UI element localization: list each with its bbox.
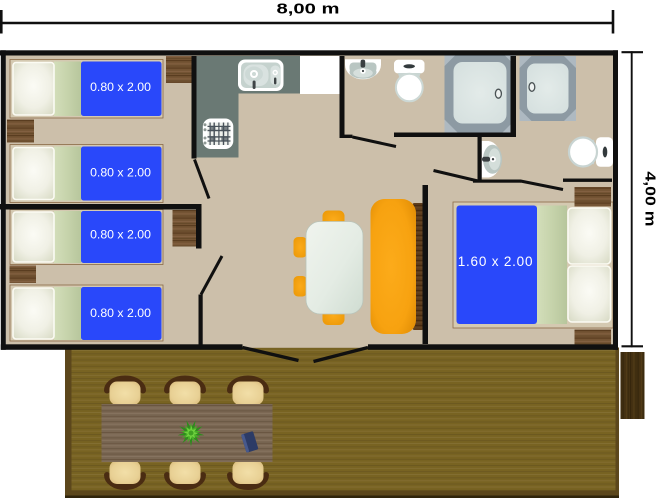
svg-text:1.60 x 2.00: 1.60 x 2.00 — [458, 254, 534, 269]
svg-text:0.80 x 2.00: 0.80 x 2.00 — [90, 306, 151, 320]
svg-text:0.80 x 2.00: 0.80 x 2.00 — [90, 228, 151, 242]
svg-text:4,00 m: 4,00 m — [641, 171, 657, 226]
svg-text:0.80 x 2.00: 0.80 x 2.00 — [90, 166, 151, 180]
svg-text:8,00 m: 8,00 m — [277, 1, 340, 17]
svg-text:0.80 x 2.00: 0.80 x 2.00 — [90, 80, 151, 94]
